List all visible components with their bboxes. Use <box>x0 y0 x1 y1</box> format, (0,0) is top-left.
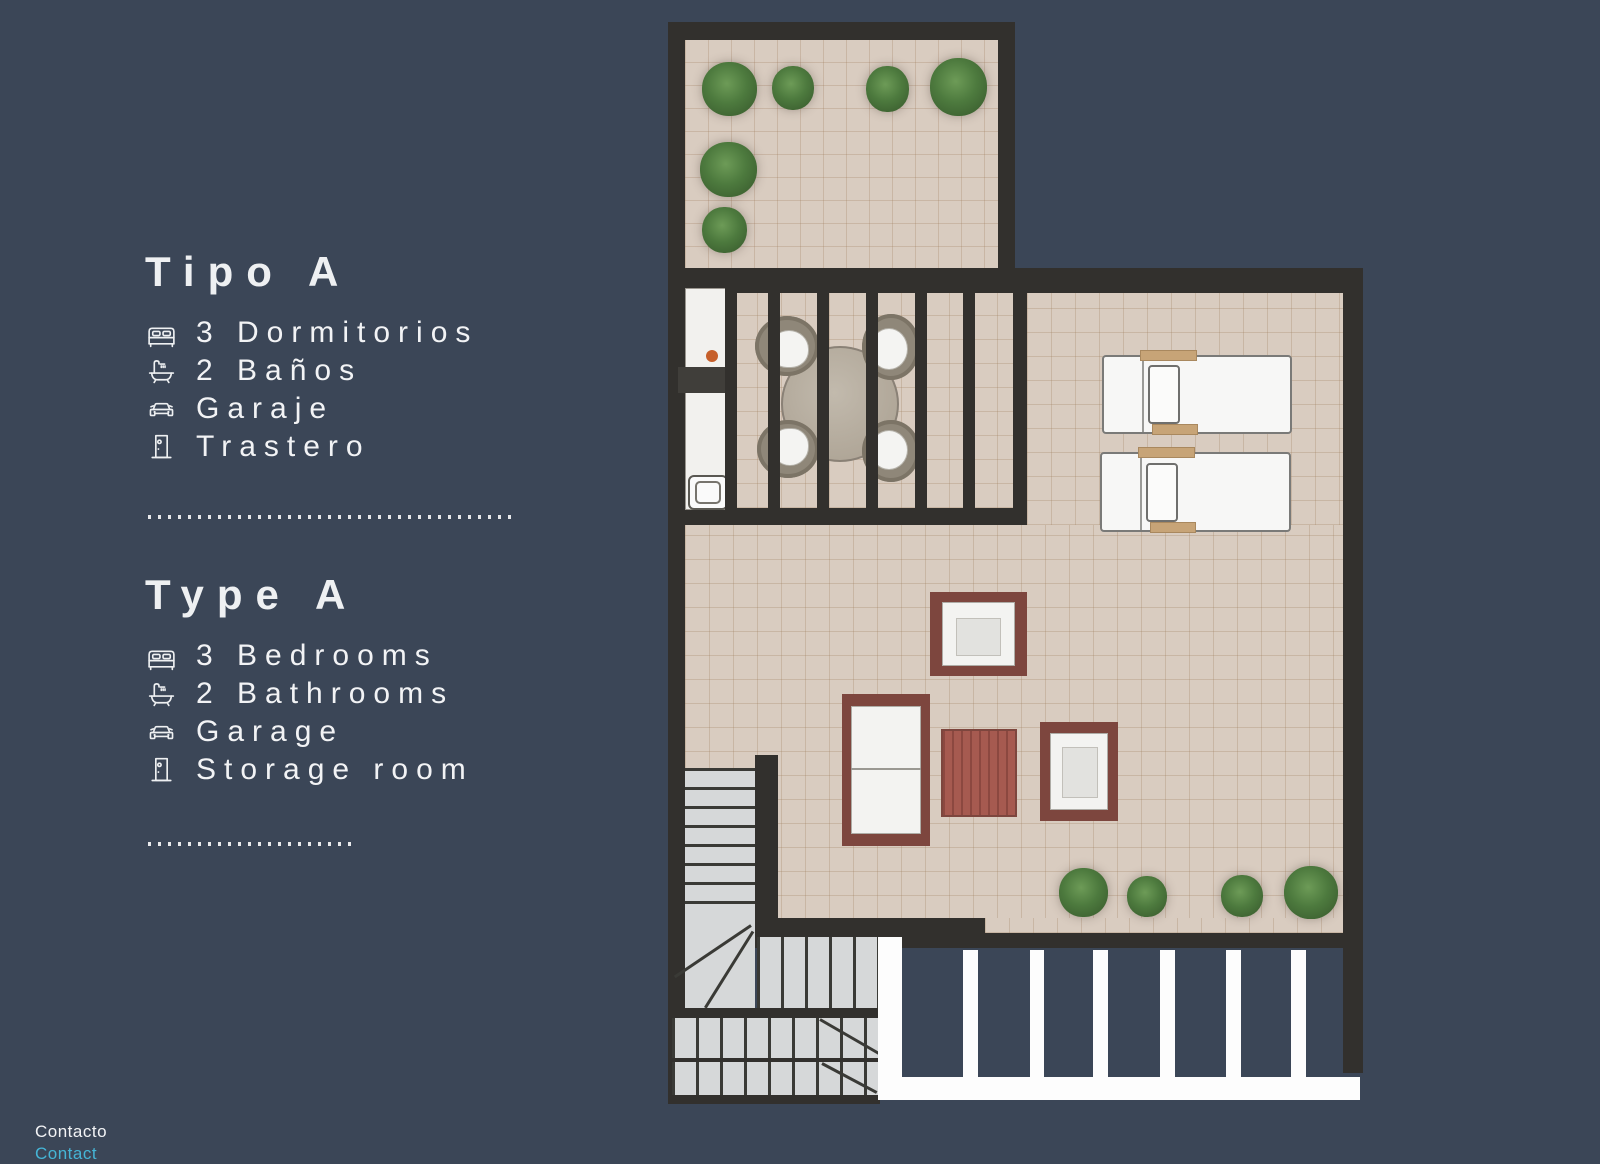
patio-beam <box>1226 950 1241 1083</box>
pergola-beam <box>768 281 780 515</box>
wall-stair-pillar <box>755 755 778 920</box>
wall-left <box>668 22 685 1102</box>
lounger-crossbar <box>1150 522 1196 533</box>
plant <box>772 66 814 110</box>
kitchen-knob <box>706 350 718 362</box>
pergola-beam <box>866 281 878 515</box>
plant <box>930 58 987 116</box>
stairs-lower-flight-b <box>672 1062 878 1095</box>
wall-top <box>668 22 1015 40</box>
sofa <box>842 694 930 846</box>
brochure-page: Tipo A 3 Dormitorios 2 Baños Garaje Tras… <box>0 0 1600 1164</box>
pergola-beam <box>915 281 927 515</box>
plant <box>702 62 757 116</box>
patio-bottom-rail <box>878 1077 1360 1100</box>
wall-right <box>1343 268 1363 1073</box>
lounger-crossbar <box>1140 350 1197 361</box>
plant <box>866 66 909 112</box>
patio-beam <box>963 950 978 1083</box>
stairs-winder <box>685 920 755 1008</box>
dining-chair <box>755 316 819 376</box>
floor-plan <box>0 0 1600 1164</box>
armchair <box>1040 722 1118 821</box>
stairs-upper-flight <box>685 768 755 920</box>
sun-lounger <box>1102 355 1292 434</box>
patio-beam <box>1093 950 1108 1083</box>
lounger-crossbar <box>1152 424 1198 435</box>
terrace-floor-main <box>685 525 1343 920</box>
wall-bottom-left <box>668 1095 880 1104</box>
kitchen-sink <box>688 475 728 510</box>
plant <box>702 207 747 253</box>
dining-chair <box>757 420 819 478</box>
stairs-lower-flight-a <box>672 1018 878 1058</box>
pergola-beam <box>817 281 829 515</box>
coffee-table <box>941 729 1017 817</box>
stairs-east-flight <box>757 937 878 1008</box>
patio-beam <box>1160 950 1175 1083</box>
armchair <box>930 592 1027 676</box>
wall-pergola-right <box>1013 268 1027 525</box>
kitchen-cooktop <box>678 367 727 393</box>
wall-upper-terrace-right <box>998 22 1015 293</box>
lounger-crossbar <box>1138 447 1195 458</box>
sun-lounger <box>1100 452 1291 532</box>
pergola-beam <box>725 281 737 515</box>
stairs-separator <box>670 1008 878 1018</box>
patio-beam <box>1291 950 1306 1083</box>
plant <box>1059 868 1108 917</box>
pergola-beam <box>963 281 975 515</box>
patio-beam <box>1030 950 1044 1083</box>
plant <box>1221 875 1263 917</box>
terrace-floor-step-overlay <box>985 918 1343 933</box>
plant <box>1127 876 1167 917</box>
plant <box>700 142 757 197</box>
plant <box>1284 866 1338 919</box>
patio-post <box>878 937 902 1100</box>
